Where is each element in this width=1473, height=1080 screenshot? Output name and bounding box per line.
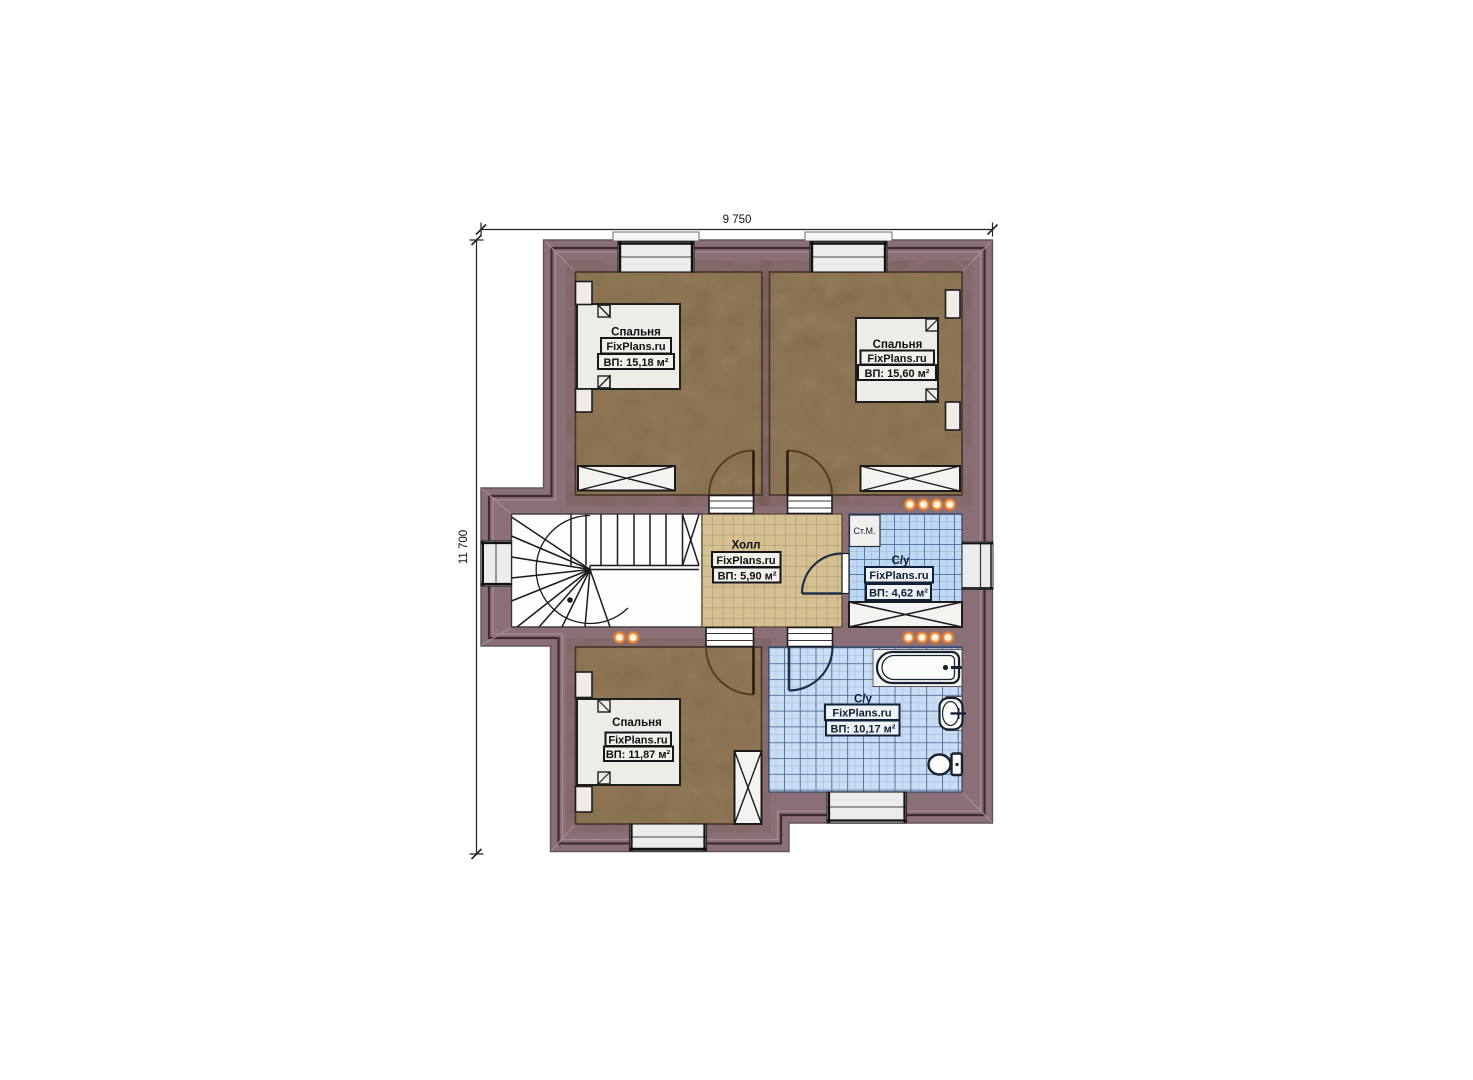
svg-text:ВП: 15,18 м²: ВП: 15,18 м² [604, 357, 669, 369]
svg-text:FixPlans.ru: FixPlans.ru [832, 708, 891, 720]
svg-text:ВП: 10,17 м²: ВП: 10,17 м² [831, 724, 896, 736]
svg-text:FixPlans.ru: FixPlans.ru [869, 570, 928, 582]
svg-text:Холл: Холл [732, 540, 761, 552]
svg-text:Спальня: Спальня [612, 717, 662, 729]
svg-text:Спальня: Спальня [873, 339, 923, 351]
svg-text:ВП: 4,62 м²: ВП: 4,62 м² [869, 588, 928, 600]
svg-text:11 700: 11 700 [458, 530, 470, 564]
svg-text:9 750: 9 750 [723, 214, 752, 226]
svg-text:FixPlans.ru: FixPlans.ru [608, 735, 667, 747]
svg-text:ВП: 11,87 м²: ВП: 11,87 м² [606, 749, 671, 761]
svg-text:FixPlans.ru: FixPlans.ru [867, 353, 926, 365]
svg-text:Ст.М.: Ст.М. [853, 526, 875, 536]
svg-text:Спальня: Спальня [611, 327, 661, 339]
svg-text:С/у: С/у [892, 555, 911, 567]
svg-text:FixPlans.ru: FixPlans.ru [606, 341, 665, 353]
svg-text:FixPlans.ru: FixPlans.ru [716, 555, 775, 567]
svg-text:ВП: 5,90 м²: ВП: 5,90 м² [718, 571, 777, 583]
svg-text:ВП: 15,60 м²: ВП: 15,60 м² [865, 368, 930, 380]
